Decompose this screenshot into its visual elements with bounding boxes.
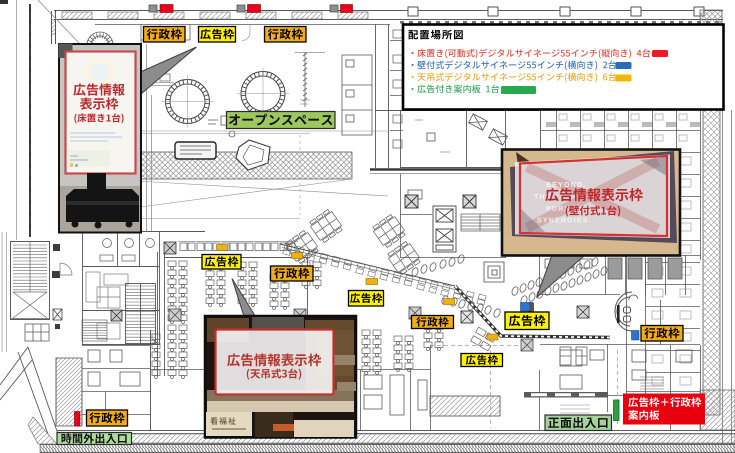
svg-text:SYNERGIES.: SYNERGIES. <box>537 218 592 225</box>
svg-text:BEYOND.: BEYOND. <box>546 182 586 189</box>
